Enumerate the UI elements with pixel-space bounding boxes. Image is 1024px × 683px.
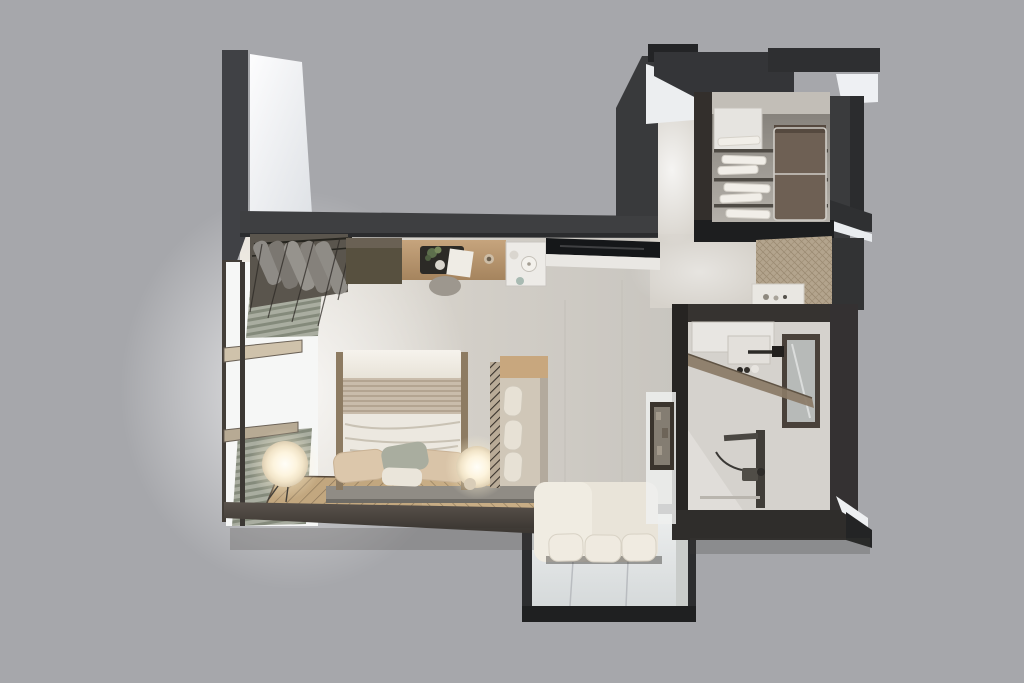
closet-side-wall <box>694 92 712 240</box>
right-wall-mid <box>832 238 864 310</box>
bathroom <box>672 304 858 530</box>
right-wall-outer <box>850 96 864 226</box>
linen-closet <box>712 92 830 222</box>
cushion <box>622 534 656 562</box>
cushion <box>585 535 621 563</box>
pillow-white <box>382 467 423 486</box>
faucet-head <box>772 346 784 357</box>
art-detail <box>656 412 661 420</box>
lamp-foot <box>464 478 476 490</box>
left-wall-white-face <box>250 54 312 214</box>
window-mullion <box>240 262 245 526</box>
bench-wood-top <box>500 356 548 378</box>
left-wall <box>222 50 248 272</box>
hand-shower <box>742 468 758 481</box>
bay-sill <box>522 606 696 622</box>
cushion <box>549 533 584 561</box>
shower-valve <box>757 468 765 476</box>
bench-shade <box>540 378 548 486</box>
folded-duvet <box>343 350 461 378</box>
ribbed-throw <box>343 378 461 414</box>
kitchenette-counter <box>506 242 546 286</box>
upholstered-bench <box>490 356 548 488</box>
stool <box>429 276 461 296</box>
bathroom-bottom-wall <box>672 510 858 540</box>
bottom-wall-shadow <box>230 528 550 550</box>
back-cushions <box>549 533 657 562</box>
toiletry-bottle <box>763 294 769 300</box>
art-detail <box>662 428 668 438</box>
bench-cushion <box>503 419 523 450</box>
coffee-cup-inner <box>487 257 492 262</box>
brown-cabinet-top <box>346 238 402 248</box>
plate <box>435 260 445 270</box>
lamp-globe <box>262 441 308 487</box>
wall-art-frame <box>646 392 676 524</box>
floorplan-svg <box>0 0 1024 683</box>
toiletry-bottle <box>774 296 779 301</box>
bathroom-right-wall <box>830 304 858 530</box>
bench-woven-edge <box>490 362 500 488</box>
wall-mirror <box>782 334 820 428</box>
pillow-beige <box>333 448 388 483</box>
bowl <box>510 251 519 260</box>
teal-cup <box>516 277 524 285</box>
floorplan-render <box>0 0 1024 683</box>
laundry-basket <box>774 125 826 220</box>
bed-platform-edge <box>326 499 550 503</box>
toiletry-bottle <box>783 295 787 299</box>
chaise-sofa <box>534 482 662 564</box>
art-detail <box>657 446 662 455</box>
kettle-knob <box>527 262 531 266</box>
bench-cushion <box>503 451 523 482</box>
bottom-right-shadow <box>690 538 870 554</box>
notebook <box>446 248 473 277</box>
bench-cushion <box>503 385 523 416</box>
drain-line <box>700 496 760 499</box>
top-right-lintel <box>768 48 880 72</box>
